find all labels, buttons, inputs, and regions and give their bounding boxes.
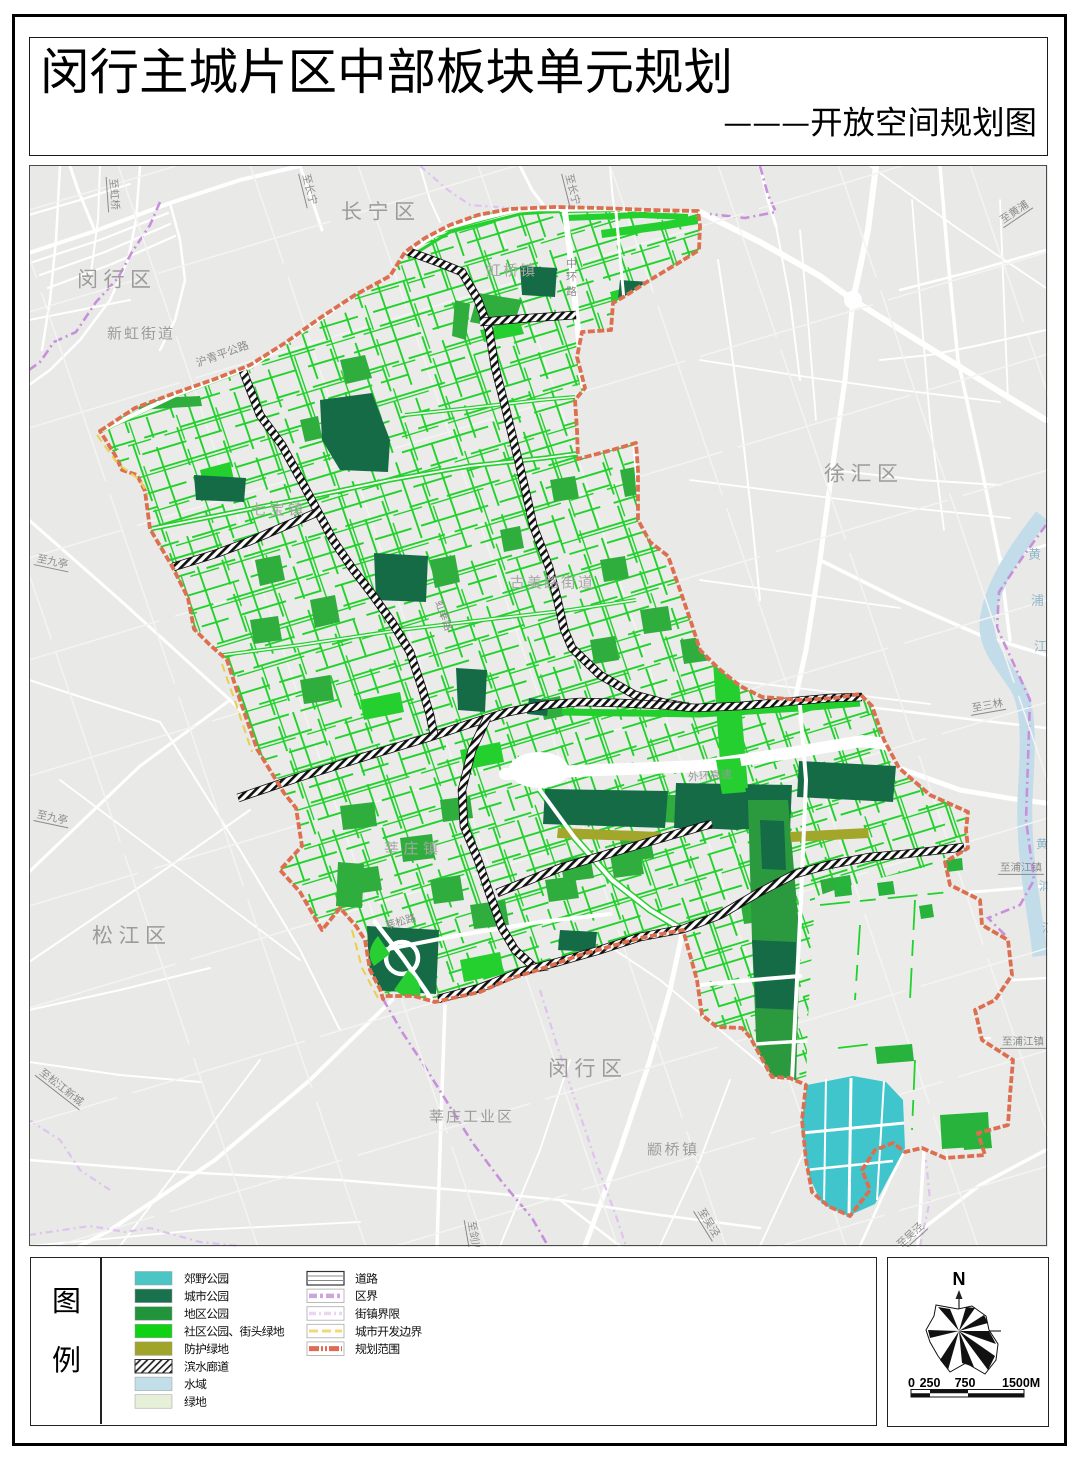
svg-text:1500M: 1500M (1002, 1376, 1040, 1390)
svg-text:250: 250 (920, 1376, 941, 1390)
svg-text:N: N (953, 1269, 966, 1289)
svg-text:750: 750 (955, 1376, 976, 1390)
svg-text:0: 0 (908, 1376, 915, 1390)
